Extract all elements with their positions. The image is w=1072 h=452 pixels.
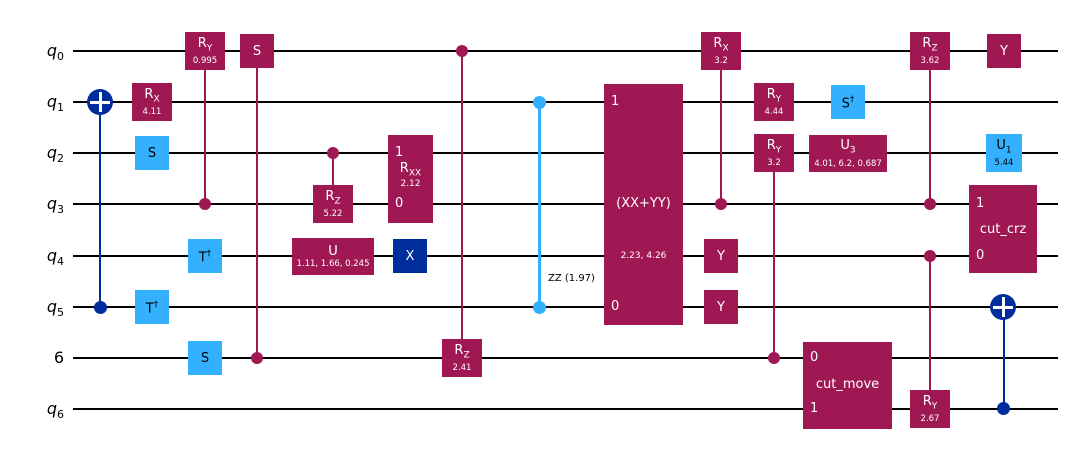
wire-label-q4: q4 bbox=[0, 245, 64, 267]
wire-label-q6: q6 bbox=[0, 398, 64, 420]
gate-rx-q1: RX 4.11 bbox=[132, 83, 172, 121]
gate-xxyy-q1-q5: 1 (XX+YY) 2.23, 4.26 0 bbox=[604, 84, 683, 325]
gate-cry-q6: RY 2.67 bbox=[910, 390, 950, 428]
gate-y-q5: Y bbox=[704, 290, 738, 324]
zz-dot-q5 bbox=[533, 301, 546, 314]
gate-u1-q2: U1 5.44 bbox=[986, 134, 1022, 172]
control-connector-ry-q0-q3 bbox=[204, 51, 206, 205]
gate-ry-q0: RY 0.995 bbox=[185, 32, 225, 70]
control-dot-q4-cry bbox=[924, 250, 936, 262]
gate-tdg-q4: T† bbox=[188, 239, 222, 273]
control-dot-q5 bbox=[94, 301, 107, 314]
gate-crx-q0: RX 3.2 bbox=[701, 32, 741, 70]
control-dot-q3 bbox=[199, 198, 211, 210]
gate-y-q4: Y bbox=[704, 239, 738, 273]
control-dot-q6 bbox=[997, 402, 1010, 415]
gate-y-q0: Y bbox=[987, 34, 1021, 68]
wire-q1 bbox=[73, 101, 1058, 103]
gate-crz2-q0: RZ 3.62 bbox=[910, 32, 950, 70]
gate-tdg-q5: T† bbox=[135, 290, 169, 324]
wire-q5 bbox=[73, 306, 1058, 308]
zz-gate-label: ZZ (1.97) bbox=[548, 273, 595, 285]
wire-label-q1: q1 bbox=[0, 91, 64, 113]
control-connector-crx-q0-q3 bbox=[720, 51, 722, 205]
cnot-connector-q5-q1 bbox=[99, 102, 101, 308]
gate-cs-q0: S bbox=[240, 34, 274, 68]
wire-label-q3: q3 bbox=[0, 193, 64, 215]
gate-cry-q2: RY 3.2 bbox=[754, 134, 794, 172]
gate-cut-move-6-q6: 0 cut_move 1 bbox=[803, 342, 892, 429]
cnot-connector-q6-q5 bbox=[1003, 307, 1005, 410]
gate-cut-crz-q3-q4: 1 cut_crz 0 bbox=[969, 185, 1037, 273]
control-dot-6-cry bbox=[768, 352, 780, 364]
gate-ry-q1: RY 4.44 bbox=[754, 83, 794, 121]
control-connector-crz-q0-6 bbox=[461, 51, 463, 359]
gate-crz-6: RZ 2.41 bbox=[442, 339, 482, 377]
wire-label-q0: q0 bbox=[0, 40, 64, 62]
gate-sdg-q1: S† bbox=[831, 85, 865, 119]
control-dot-q2 bbox=[327, 147, 339, 159]
control-dot-q0 bbox=[456, 45, 468, 57]
zz-dot-q1 bbox=[533, 96, 546, 109]
wire-q3 bbox=[73, 203, 1058, 205]
gate-u-q4: U 1.11, 1.66, 0.245 bbox=[292, 238, 374, 275]
gate-crz-q3: RZ 5.22 bbox=[313, 185, 353, 223]
control-connector-cs-q0-6 bbox=[256, 51, 258, 359]
control-dot-q3-crz2 bbox=[924, 198, 936, 210]
wire-label-q5: q5 bbox=[0, 296, 64, 318]
control-connector-cry-q2-6 bbox=[773, 153, 775, 359]
gate-rxx-q2-q3: 1 RXX 2.12 0 bbox=[388, 135, 433, 223]
cnot-target-q1 bbox=[87, 89, 113, 115]
wire-label-q2: q2 bbox=[0, 142, 64, 164]
control-dot-q3-crx bbox=[715, 198, 727, 210]
wire-q2 bbox=[73, 152, 1058, 154]
gate-x-q4: X bbox=[393, 239, 427, 273]
wire-label-6: 6 bbox=[0, 347, 64, 369]
zz-connector-q1-q5 bbox=[538, 102, 541, 308]
gate-s-6: S bbox=[188, 341, 222, 375]
control-dot-6 bbox=[251, 352, 263, 364]
gate-u3-q2: U3 4.01, 6.2, 0.687 bbox=[809, 135, 887, 172]
quantum-circuit-diagram: q0 q1 q2 q3 q4 q5 6 q6 RX 4.11 S T† bbox=[0, 0, 1072, 452]
control-connector-crz-q0-q3-2 bbox=[929, 51, 931, 205]
cnot-target-q5 bbox=[990, 294, 1016, 320]
gate-s-q2: S bbox=[135, 136, 169, 170]
control-connector-cry-q4-q6 bbox=[929, 256, 931, 410]
